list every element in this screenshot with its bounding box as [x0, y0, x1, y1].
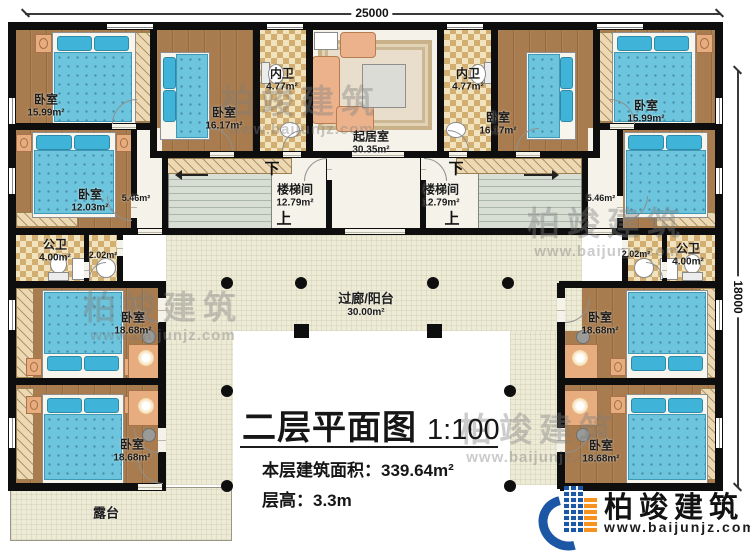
- window: [716, 300, 722, 330]
- label-hall-right: 2.02m²: [622, 249, 651, 259]
- wall: [150, 30, 157, 158]
- label-corridor-right: 5.46m²: [587, 193, 616, 203]
- label-pub-bath-right: 公卫 4.00m²: [672, 242, 704, 267]
- pillow: [560, 90, 573, 122]
- label-bedroom-top-left: 卧室 15.99m²: [27, 93, 64, 118]
- window: [9, 168, 15, 194]
- label-bath-inner-right: 内卫 4.77m²: [452, 67, 484, 92]
- label-bedroom-right-lower: 卧室 18.68m²: [582, 439, 619, 464]
- pillow: [617, 36, 652, 51]
- floor-height-line: 层高：3.3m: [262, 486, 352, 511]
- stair-arrow: [524, 174, 552, 176]
- window: [9, 418, 15, 448]
- pillow: [668, 356, 703, 371]
- stair-arrow: [180, 174, 208, 176]
- door-opening: [138, 484, 162, 490]
- nightstand: [26, 358, 42, 376]
- label-corridor-left: 5.46m²: [122, 193, 151, 203]
- label-terrace: 露台: [93, 507, 119, 522]
- column-round: [504, 385, 516, 397]
- column-round: [221, 480, 233, 492]
- blanket: [628, 292, 706, 354]
- window: [267, 24, 303, 29]
- balcony-strip-left: [166, 331, 233, 485]
- window: [716, 418, 722, 448]
- door-opening: [449, 152, 467, 157]
- lamp: [138, 398, 154, 414]
- nightstand: [35, 34, 52, 53]
- stair-down-label: 下: [264, 158, 279, 179]
- logo-building-icon: [564, 486, 583, 532]
- logo-building-icon: [584, 496, 597, 532]
- column-round: [502, 277, 514, 289]
- tv-stand: [314, 32, 338, 50]
- toilet-icon: [48, 272, 69, 281]
- nightstand: [696, 34, 713, 53]
- window: [716, 168, 722, 194]
- pillow: [560, 57, 573, 89]
- window: [716, 98, 722, 124]
- door-opening: [283, 152, 301, 157]
- nightstand: [16, 134, 32, 152]
- pillow: [631, 398, 666, 413]
- plan-title: 二层平面图: [242, 409, 417, 447]
- pillow: [654, 36, 689, 51]
- wall: [491, 30, 498, 158]
- label-stair-right: 楼梯间 12.79m²: [422, 183, 459, 208]
- lamp: [138, 350, 154, 366]
- pillow: [668, 398, 703, 413]
- pillow: [57, 36, 92, 51]
- pillow: [47, 356, 82, 371]
- brand-site: www.baijunjz.com: [604, 519, 750, 535]
- brand-logo: 柏竣建筑 www.baijunjz.com: [538, 482, 743, 544]
- wall: [162, 152, 168, 232]
- floor-height-value: 3.3m: [313, 491, 352, 510]
- column-round: [221, 277, 233, 289]
- pillow: [628, 135, 664, 150]
- column-round: [221, 385, 233, 397]
- stair-arrow-head: [552, 170, 564, 180]
- door-opening: [138, 229, 162, 234]
- window: [107, 24, 153, 29]
- window: [597, 24, 643, 29]
- door-opening: [557, 298, 565, 322]
- door-opening: [117, 240, 123, 256]
- dimension-top: 25000: [351, 6, 392, 20]
- pillow: [36, 135, 72, 150]
- door-opening: [345, 229, 405, 234]
- label-bedroom-right-upper: 卧室 18.68m²: [581, 311, 618, 336]
- window: [9, 300, 15, 330]
- pillow: [94, 36, 129, 51]
- label-stair-left: 楼梯间 12.79m²: [276, 183, 313, 208]
- plan-scale: 1:100: [427, 414, 500, 446]
- column-round: [427, 277, 439, 289]
- pillow: [631, 356, 666, 371]
- armchair: [340, 32, 376, 58]
- lamp: [572, 350, 588, 366]
- dimension-right: 18000: [731, 276, 745, 317]
- pillow: [74, 135, 110, 150]
- pillow: [47, 398, 82, 413]
- pillow: [84, 356, 119, 371]
- stair-down-label: 下: [448, 158, 463, 179]
- stair-up-label: 上: [276, 208, 291, 229]
- door-opening: [327, 158, 332, 180]
- wall: [8, 281, 166, 288]
- label-bedroom-mid-left: 卧室 12.03m²: [71, 188, 108, 213]
- blanket: [528, 54, 560, 138]
- pillow: [163, 90, 176, 122]
- floor-plan: 柏竣建筑 www.baijunjz.com 柏竣建筑 www.baijunjz.…: [0, 0, 750, 554]
- label-bath-inner-left: 内卫 4.77m²: [266, 67, 298, 92]
- label-living: 起居室 30.35m²: [352, 130, 389, 155]
- window: [9, 98, 15, 124]
- blanket: [44, 414, 122, 480]
- floor-area-value: 339.64m²: [381, 461, 454, 480]
- floor-area-label: 本层建筑面积：: [262, 461, 381, 480]
- column-square: [294, 324, 309, 338]
- stair-up-label: 上: [444, 208, 459, 229]
- label-bedroom-left-lower: 卧室 18.68m²: [113, 438, 150, 463]
- stair-arrow-head: [170, 170, 182, 180]
- wall: [8, 378, 166, 385]
- label-hall-left: 2.02m²: [89, 250, 118, 260]
- wall: [593, 30, 600, 158]
- window: [447, 24, 483, 29]
- door-opening: [210, 152, 234, 157]
- wall: [559, 281, 723, 288]
- door-opening: [112, 124, 136, 129]
- watermark-name: 柏竣建筑: [492, 206, 722, 242]
- door-opening: [158, 428, 166, 452]
- toilet-icon: [682, 272, 703, 281]
- watermark: 柏竣建筑 www.baijunjz.com: [48, 290, 278, 345]
- nightstand: [26, 396, 42, 414]
- column-round: [504, 480, 516, 492]
- floor-height-label: 层高：: [262, 491, 313, 510]
- wall: [557, 378, 723, 385]
- pillow: [163, 57, 176, 89]
- door-opening: [516, 152, 540, 157]
- nightstand: [116, 134, 132, 152]
- label-bedroom-top-right-2: 卧室 16.17m²: [479, 111, 516, 136]
- plan-title-row: 二层平面图1:100: [242, 400, 500, 449]
- wall: [437, 30, 444, 158]
- title-underline: [240, 446, 498, 448]
- label-bedroom-left-upper: 卧室 18.68m²: [114, 311, 151, 336]
- watermark-site: www.baijunjz.com: [48, 328, 278, 345]
- label-bedroom-top-right: 卧室 15.99m²: [627, 99, 664, 124]
- terrace: [10, 487, 232, 541]
- pillow: [666, 135, 702, 150]
- floor-area-line: 本层建筑面积：339.64m²: [262, 456, 454, 481]
- nightstand: [610, 358, 626, 376]
- column-round: [295, 277, 307, 289]
- label-balcony: 过廊/阳台 30.00m²: [338, 292, 394, 318]
- label-pub-bath-left: 公卫 4.00m²: [39, 238, 71, 263]
- door-opening: [610, 124, 634, 129]
- watermark-name: 柏竣建筑: [48, 290, 278, 326]
- column-square: [427, 324, 442, 338]
- label-bedroom-top-left-2: 卧室 16.17m²: [205, 106, 242, 131]
- pillow: [84, 398, 119, 413]
